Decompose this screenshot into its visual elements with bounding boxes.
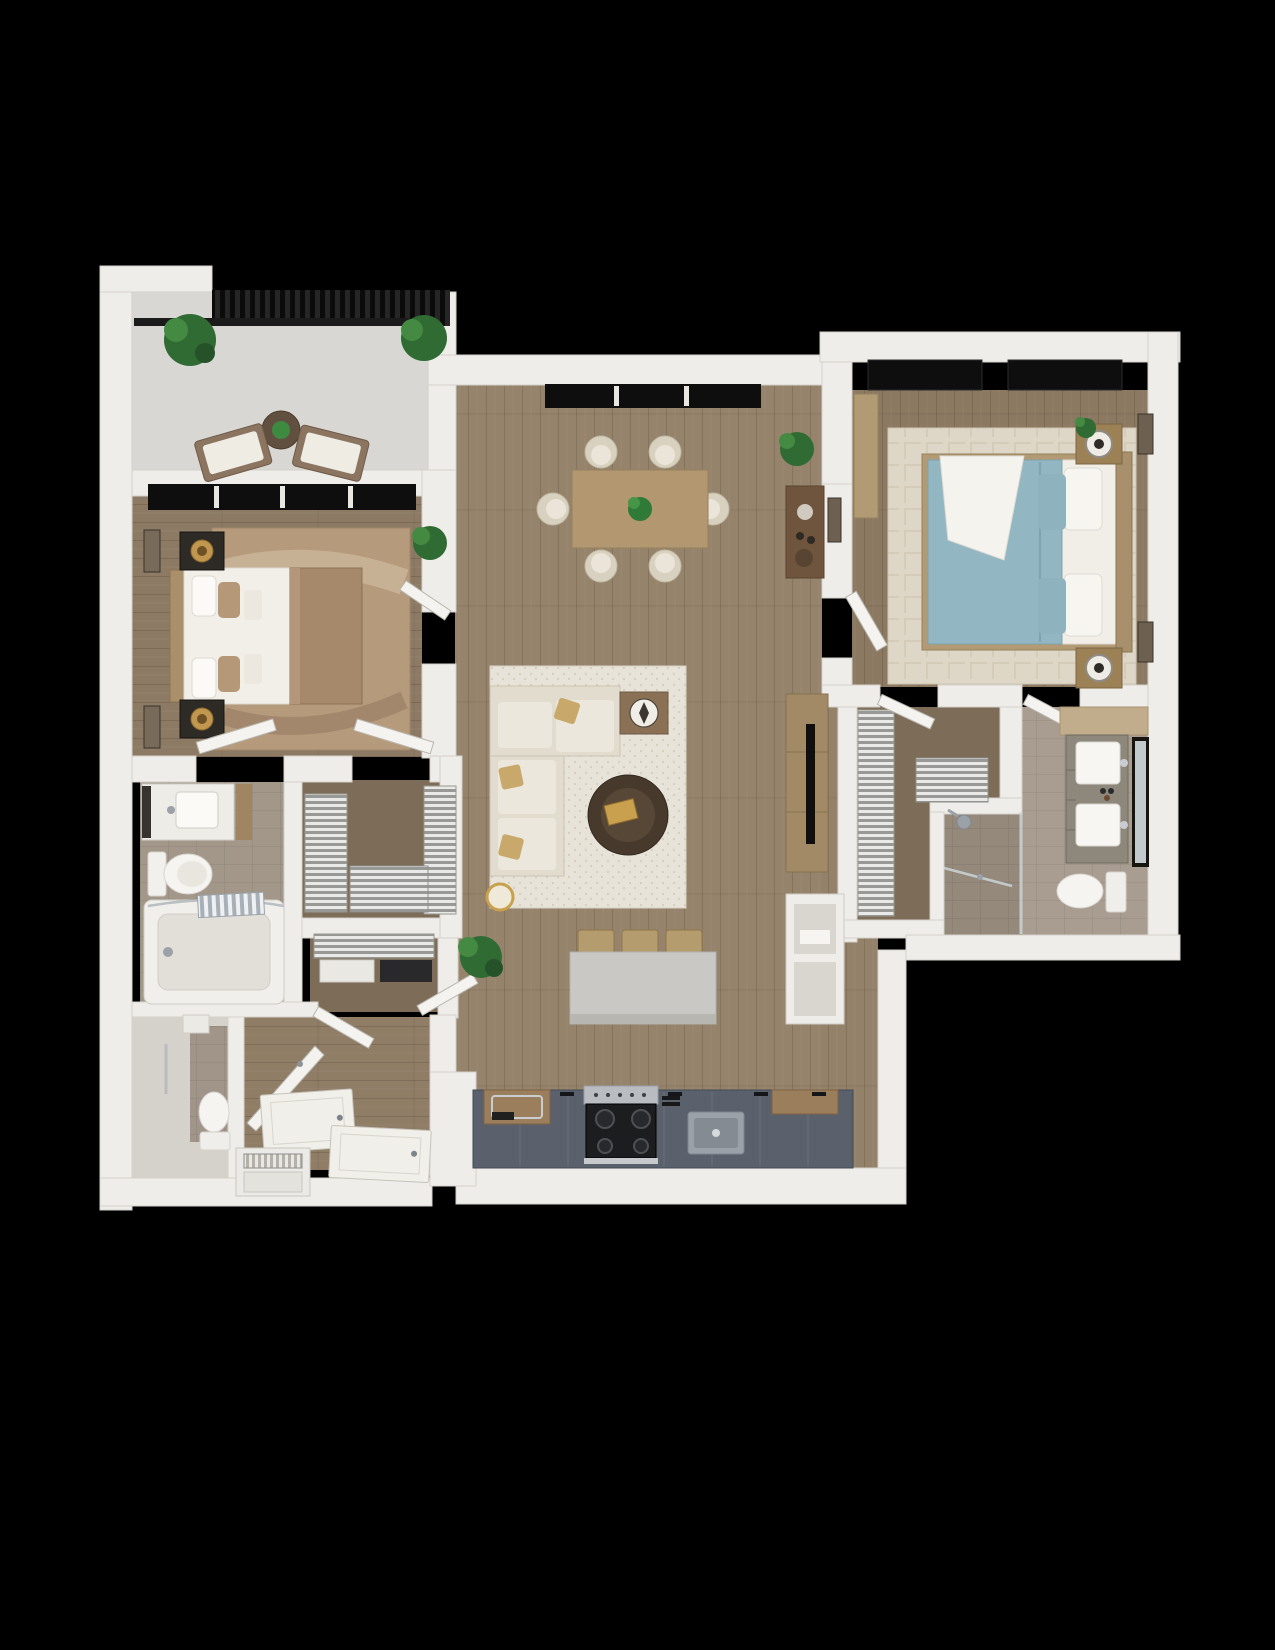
sofa-accent-pillow-2 — [498, 764, 524, 790]
slider-mullion-1 — [214, 486, 219, 508]
shower-tile-lines — [944, 812, 1022, 935]
dining-window-mullion-1 — [614, 386, 619, 406]
slider-mullion-3 — [348, 486, 353, 508]
dining-chair-1 — [585, 436, 617, 468]
wall-shower-left — [930, 812, 944, 937]
dining-chair-2 — [649, 436, 681, 468]
dining-chair-4 — [649, 550, 681, 582]
bedroom2-wall-art-top — [1138, 414, 1153, 454]
chair-seat — [591, 445, 611, 465]
range-knob-5 — [642, 1093, 646, 1097]
bath1-toilet-tank — [148, 852, 166, 896]
bar-console-tray — [797, 504, 813, 520]
plant-foliage-hi — [458, 937, 478, 957]
bath1-shower-curtain — [197, 892, 264, 917]
wall-kitchen-return — [430, 1072, 476, 1186]
layer-kitchen-fixtures — [473, 1086, 853, 1168]
floor-plan-page — [0, 0, 1275, 1650]
cutting-board-slot — [492, 1112, 514, 1120]
apartment-floor-plan-rendering — [0, 0, 1275, 1650]
entry-open-panel-b — [329, 1125, 432, 1182]
wall-bedroom2-bottom-a — [822, 685, 880, 707]
bedroom2-wardrobe — [854, 394, 878, 518]
closet1-wire-shelf-left — [305, 794, 347, 912]
cabinet-handle-1 — [560, 1092, 574, 1096]
ring-lamp-bed2-bottom-center — [1094, 663, 1104, 673]
bath1-tub-faucet — [163, 947, 173, 957]
burner-1 — [596, 1110, 614, 1128]
closet2-laundry-basket — [916, 758, 988, 802]
dining-chair-5 — [537, 493, 569, 525]
bed2-pillow-white-bottom — [1064, 574, 1102, 636]
kitchen-faucet — [712, 1129, 720, 1137]
bed1-pillow-small-bottom — [244, 654, 262, 684]
wall-bedroom1-bottom-a — [132, 756, 196, 782]
bed2-pillow-blue-top — [1038, 474, 1066, 530]
bed1-headboard — [170, 570, 184, 702]
bath2-toiletry-1 — [1100, 788, 1106, 794]
bath2-mirror-glass — [1135, 741, 1146, 863]
bath2-faucet-top — [1120, 759, 1128, 767]
wall-bath1-closet-divider — [284, 782, 302, 1008]
bedroom2-window-1 — [868, 360, 982, 390]
bed2-pillow-white-top — [1064, 468, 1102, 530]
dining-chair-3 — [585, 550, 617, 582]
linen-wire-shelf — [314, 934, 434, 958]
bed1-pillow-tan-bottom — [218, 656, 240, 692]
closet2-wire-shelf — [858, 710, 894, 916]
cabinet-handle-3 — [754, 1092, 768, 1096]
bath2-faucet-bottom — [1120, 821, 1128, 829]
plant-foliage-hi — [1075, 417, 1085, 427]
range-knob-1 — [594, 1093, 598, 1097]
bedroom1-wall-art-top — [144, 530, 160, 572]
bath1-tub-basin — [158, 914, 270, 990]
vent-slot-2 — [662, 1102, 680, 1106]
dining-window-glass — [545, 384, 761, 408]
bath2-toiletry-2 — [1108, 788, 1114, 794]
plant-foliage-lo — [195, 343, 215, 363]
plant-foliage-hi — [779, 433, 795, 449]
art-by-console — [828, 498, 841, 542]
pantry-cubby-top — [794, 904, 836, 954]
bar-console-bottle-1 — [796, 532, 804, 540]
bath2-sink-top — [1076, 742, 1120, 784]
wall-closet2-bath2 — [1000, 707, 1022, 812]
entry-door-handle — [297, 1061, 303, 1067]
powder-toilet-bowl — [199, 1092, 229, 1132]
wall-bedroom1-bottom-b — [284, 756, 352, 782]
layer-bedroom2-furniture — [846, 394, 1153, 688]
wall-bath2-bottom — [906, 935, 1180, 960]
range-knob-2 — [606, 1093, 610, 1097]
wall-bedroom2-bottom-b — [938, 685, 1022, 707]
louver-closet-door — [244, 1172, 302, 1192]
chair-seat — [546, 499, 566, 519]
plant-foliage-hi — [412, 527, 430, 545]
dining-centerpiece-plant — [628, 497, 652, 521]
bed1-blanket-fold — [290, 568, 300, 704]
chair-seat — [655, 445, 675, 465]
bed1-pillow-white-bottom — [192, 658, 216, 698]
bath1-toilet-seat — [177, 861, 207, 887]
television — [806, 724, 815, 844]
balcony-plant-right — [401, 315, 447, 361]
bath2-toilet-tank — [1106, 872, 1126, 912]
linen-box-white — [320, 960, 374, 982]
wall-linen-east — [438, 938, 458, 1018]
bedroom2-wall-art-bottom — [1138, 622, 1153, 662]
bath1-faucet — [167, 806, 175, 814]
shower-door-handle — [977, 874, 983, 880]
floor-lamp — [487, 884, 513, 910]
plant-foliage-lo — [485, 959, 503, 977]
dining-window-mullion-2 — [684, 386, 689, 406]
balcony-plant-left — [164, 314, 216, 366]
bath2-counter-top — [1060, 707, 1148, 735]
wall-kitchen-bottom — [456, 1168, 906, 1204]
bed1-pillow-tan-top — [218, 582, 240, 618]
plant-foliage-hi — [628, 497, 640, 509]
bed1-pillow-small-top — [244, 590, 262, 620]
burner-2 — [632, 1110, 650, 1128]
bath2-toiletry-3 — [1104, 795, 1110, 801]
burner-4 — [634, 1139, 648, 1153]
balcony-table-plant — [272, 421, 290, 439]
range-knob-4 — [630, 1093, 634, 1097]
bath1-sink — [176, 792, 218, 828]
louver-closet-vent — [244, 1154, 302, 1168]
wall-bedroom2-left-a — [822, 362, 852, 484]
bed2-pillow-blue-bottom — [1038, 578, 1066, 634]
shower-head — [957, 815, 971, 829]
bedroom2-window-2 — [1008, 360, 1122, 390]
chair-seat — [591, 553, 611, 573]
pantry-shelf-unit — [786, 894, 844, 1024]
kitchen-island-edge — [570, 1014, 716, 1024]
cabinet-handle-4 — [812, 1092, 826, 1096]
sofa-cushion-1 — [498, 702, 552, 748]
pantry-item — [800, 930, 830, 944]
bar-console-basket — [795, 549, 813, 567]
plant-foliage-hi — [401, 319, 423, 341]
powder-toilet-tank — [200, 1132, 230, 1150]
counter-wood-section-right — [772, 1090, 838, 1114]
ring-lamp-bed2-top-center — [1094, 439, 1104, 449]
slider-mullion-2 — [280, 486, 285, 508]
range-handle — [584, 1158, 658, 1164]
wall-outer-left — [100, 266, 132, 1210]
vent-slot-1 — [662, 1096, 680, 1100]
wall-living-top — [428, 355, 830, 385]
bed2-headboard — [1116, 452, 1132, 652]
layer-bedroom1-furniture — [144, 526, 451, 754]
lamp-bed1-top-shade — [197, 546, 207, 556]
bar-console-bottle-2 — [807, 536, 815, 544]
bed1-pillow-white-top — [192, 576, 216, 616]
lamp-bed1-bottom-shade — [197, 714, 207, 724]
plant-foliage-hi — [164, 318, 188, 342]
bed1-blanket — [290, 568, 362, 704]
kitchen-island — [570, 952, 716, 1024]
bath1-mirror — [142, 786, 151, 838]
powder-ledge — [183, 1015, 209, 1033]
bath2-sink-bottom — [1076, 804, 1120, 846]
burner-3 — [598, 1139, 612, 1153]
bath1-cabinet — [236, 784, 252, 840]
bedroom1-wall-art-bottom — [144, 706, 160, 748]
wall-balcony-top-stub — [100, 266, 212, 292]
cabinet-handle-2 — [668, 1092, 682, 1096]
pantry-cubby-bottom — [794, 962, 836, 1016]
wall-bedroom2-top — [820, 332, 1180, 362]
range-knob-3 — [618, 1093, 622, 1097]
wall-right-lower — [878, 950, 906, 1202]
chair-seat — [655, 553, 675, 573]
bath2-toilet-bowl — [1057, 874, 1103, 908]
closet1-wire-shelf-right — [424, 786, 456, 914]
linen-box-dark — [380, 960, 432, 982]
closet1-laundry-basket — [350, 866, 428, 912]
